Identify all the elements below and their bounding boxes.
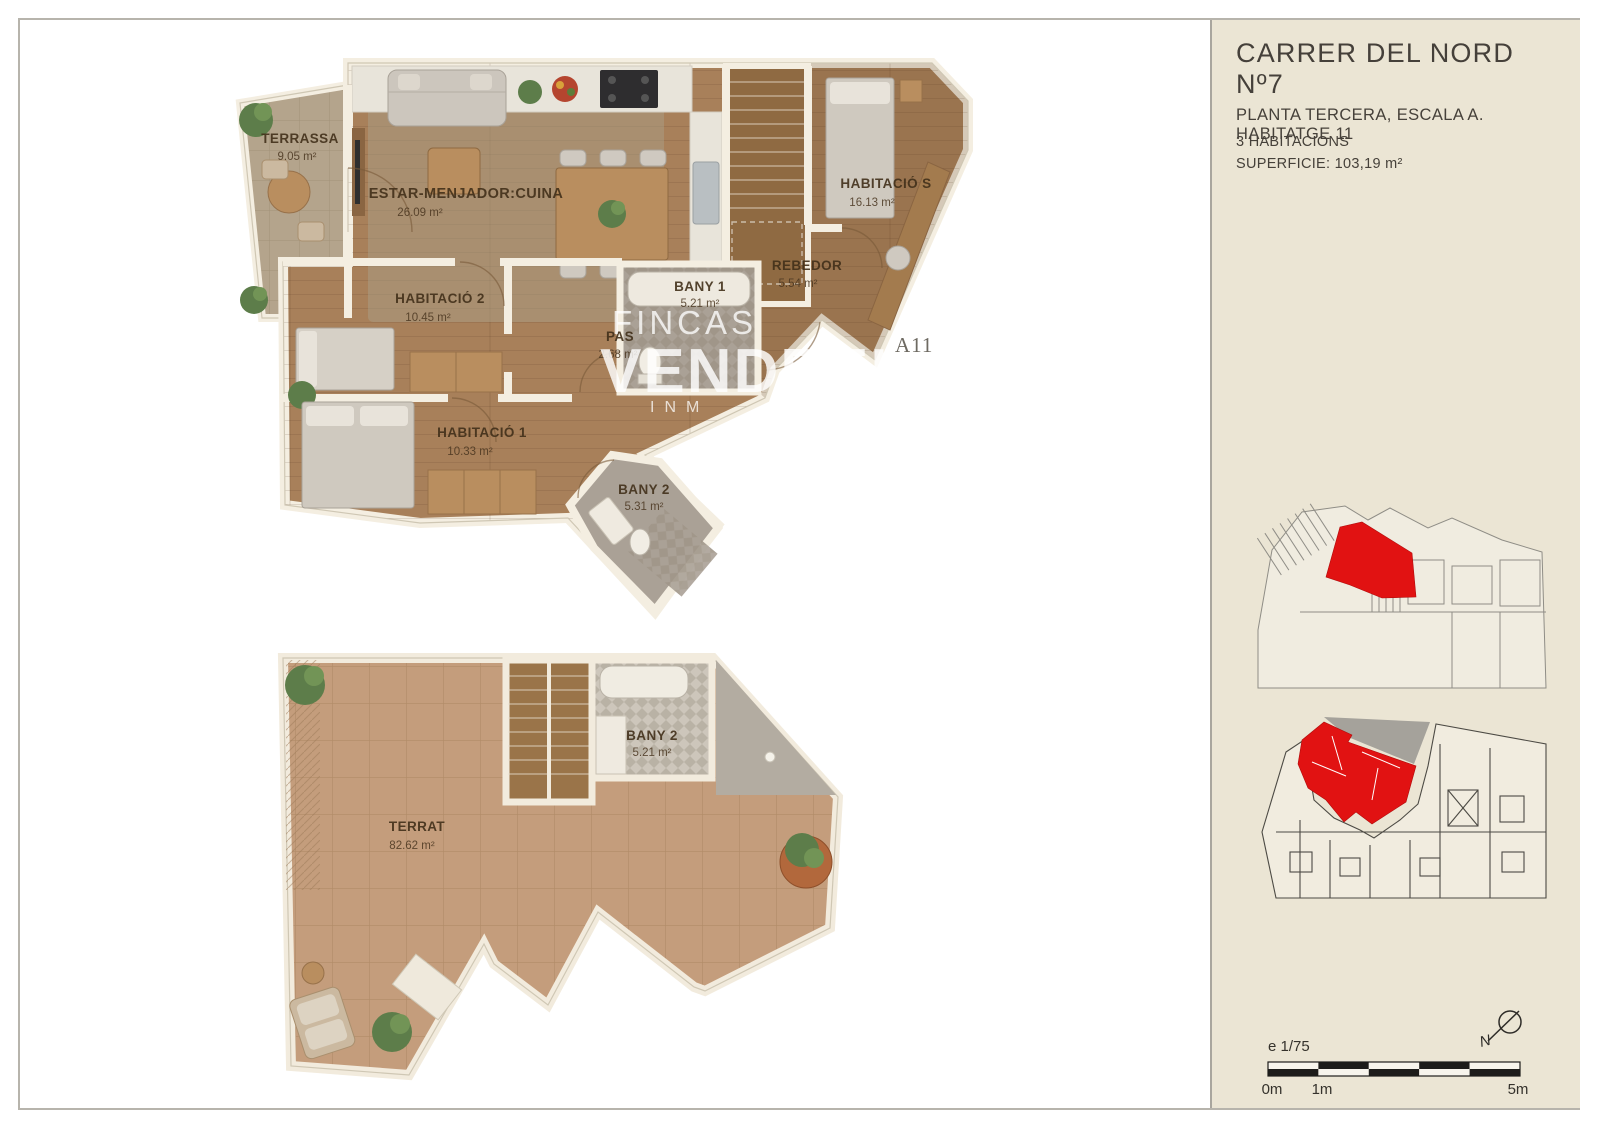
- site-key-plans: [1230, 480, 1570, 910]
- room-label-terrassa: TERRASSA: [261, 131, 338, 146]
- north-letter: N: [1478, 1032, 1493, 1051]
- room-label-habitacio2: HABITACIÓ 2: [395, 291, 485, 306]
- shelf-unit: [428, 470, 536, 514]
- scale-and-north: e 1/75 0m 1m 5m N: [1240, 995, 1570, 1105]
- watermark-line1: FINCAS: [612, 304, 757, 341]
- scale-tick-5m: 5m: [1508, 1081, 1529, 1098]
- floor-plan-lower: TERRAT 82.62 m² BANY 2 5.21 m²: [270, 645, 850, 1090]
- unit-label: A11: [895, 333, 933, 357]
- room-label-estar: ESTAR-MENJADOR:CUINA: [369, 186, 564, 202]
- nightstand: [900, 80, 922, 102]
- room-area-terrassa: 9.05 m²: [278, 151, 317, 163]
- plant-icon: [240, 286, 268, 314]
- room-label-rebedor: REBEDOR: [772, 258, 842, 273]
- room-area-rebedor: 5.54 m²: [779, 278, 818, 290]
- scale-ratio-label: e 1/75: [1268, 1038, 1310, 1055]
- room-label-habitacio-s: HABITACIÓ S: [840, 176, 931, 191]
- page-title: CARRER DEL NORD Nº7: [1236, 38, 1566, 100]
- room-label-terrat: TERRAT: [389, 819, 445, 834]
- room-area-habitacio2: 10.45 m²: [405, 312, 451, 324]
- room-bany2-lower: [592, 660, 712, 778]
- room-area-bany2-upper: 5.31 m²: [625, 501, 664, 513]
- fruit-bowl-icon: [552, 76, 578, 102]
- room-label-habitacio1: HABITACIÓ 1: [437, 425, 527, 440]
- bathtub-icon: [600, 666, 688, 698]
- detail-surface: SUPERFICIE: 103,19 m²: [1236, 156, 1566, 172]
- room-label-bany2-lower: BANY 2: [626, 728, 678, 743]
- room-label-bany1: BANY 1: [674, 279, 726, 294]
- room-area-habitacio1: 10.33 m²: [447, 446, 493, 458]
- stairs-lower: [506, 660, 592, 802]
- watermark-line3: INM: [650, 399, 709, 416]
- sink-icon: [693, 162, 719, 224]
- room-area-estar: 26.09 m²: [397, 207, 443, 219]
- vanity: [596, 716, 626, 774]
- roof-wedge: [716, 660, 836, 795]
- room-bany2-upper: [570, 455, 718, 610]
- scale-tick-0m: 0m: [1262, 1081, 1283, 1098]
- stove-icon: [600, 70, 658, 108]
- plant-icon: [518, 80, 542, 104]
- side-table: [302, 962, 324, 984]
- terrace-chair: [298, 222, 324, 241]
- room-area-terrat: 82.62 m²: [389, 840, 435, 852]
- scale-bar: [1268, 1062, 1520, 1076]
- floor-plan-upper: TERRASSA 9.05 m² ESTAR-MENJADOR:CUINA 26…: [230, 50, 980, 630]
- detail-rooms: 3 HABITACIONS: [1236, 134, 1566, 150]
- room-area-habitacio-s: 16.13 m²: [849, 197, 895, 209]
- desk-chair: [886, 246, 910, 270]
- room-area-bany2-lower: 5.21 m²: [633, 747, 672, 759]
- toilet-icon: [630, 529, 650, 555]
- key-plan-lower: [1262, 717, 1546, 898]
- scale-tick-1m: 1m: [1312, 1081, 1333, 1098]
- room-label-bany2-upper: BANY 2: [618, 482, 670, 497]
- north-arrow-icon: N: [1478, 1011, 1521, 1051]
- key-plan-upper: [1257, 504, 1546, 688]
- skylight-icon: [765, 752, 775, 762]
